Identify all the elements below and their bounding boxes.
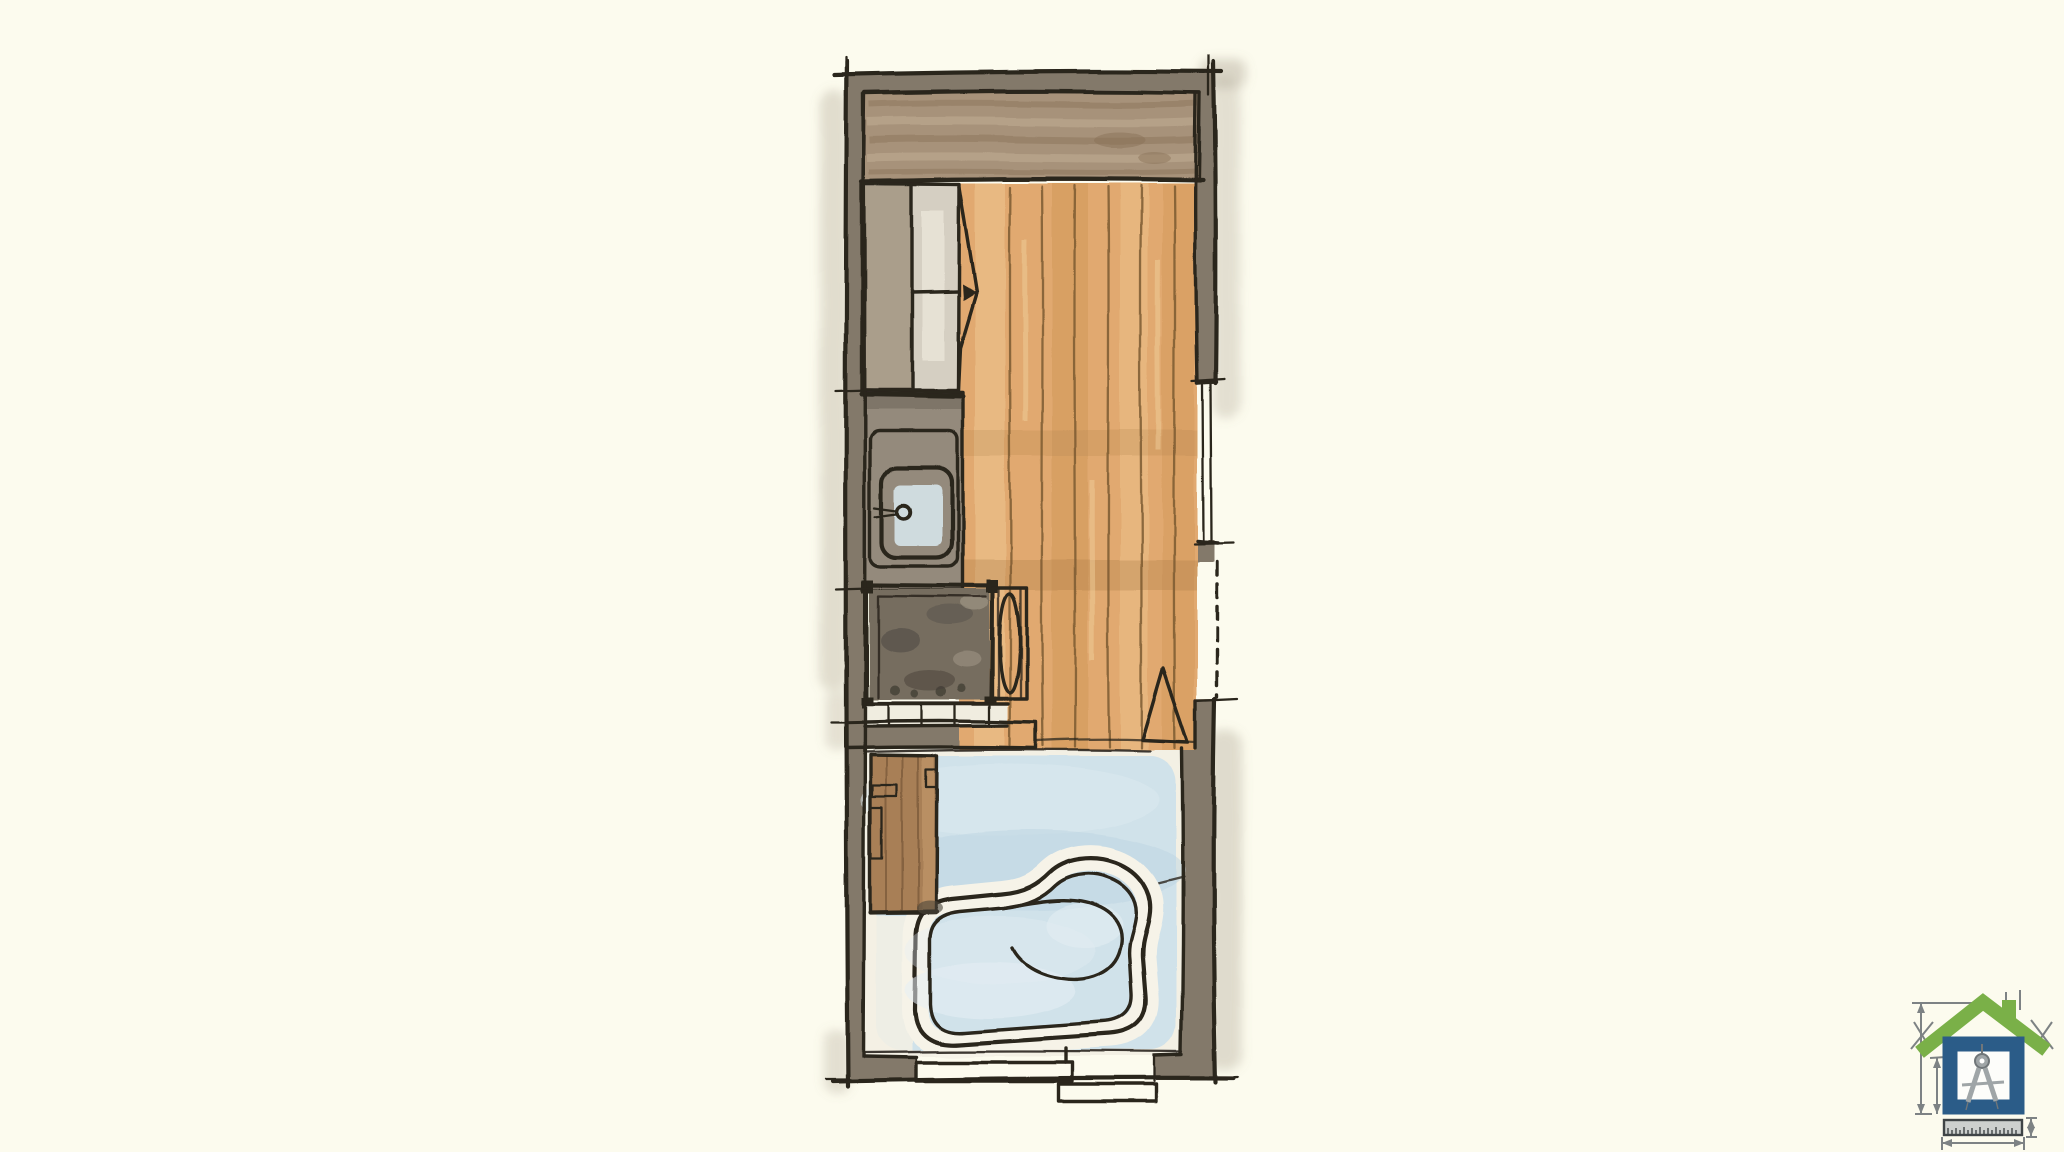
wet-room: [860, 750, 1185, 1056]
shower: [861, 580, 998, 707]
floor-plan: [820, 56, 1246, 1101]
closet: [862, 183, 976, 390]
screenshot: [0, 0, 2064, 1152]
ruler-icon: [1944, 1120, 2022, 1135]
header-wood-band: [862, 91, 1203, 181]
closet-shelf-line: [912, 292, 958, 293]
tiny-house-floor-plan: [0, 0, 2064, 1152]
sink-vanity: [862, 390, 963, 590]
wood-floor: [960, 183, 1197, 750]
cabinet: [870, 755, 943, 915]
